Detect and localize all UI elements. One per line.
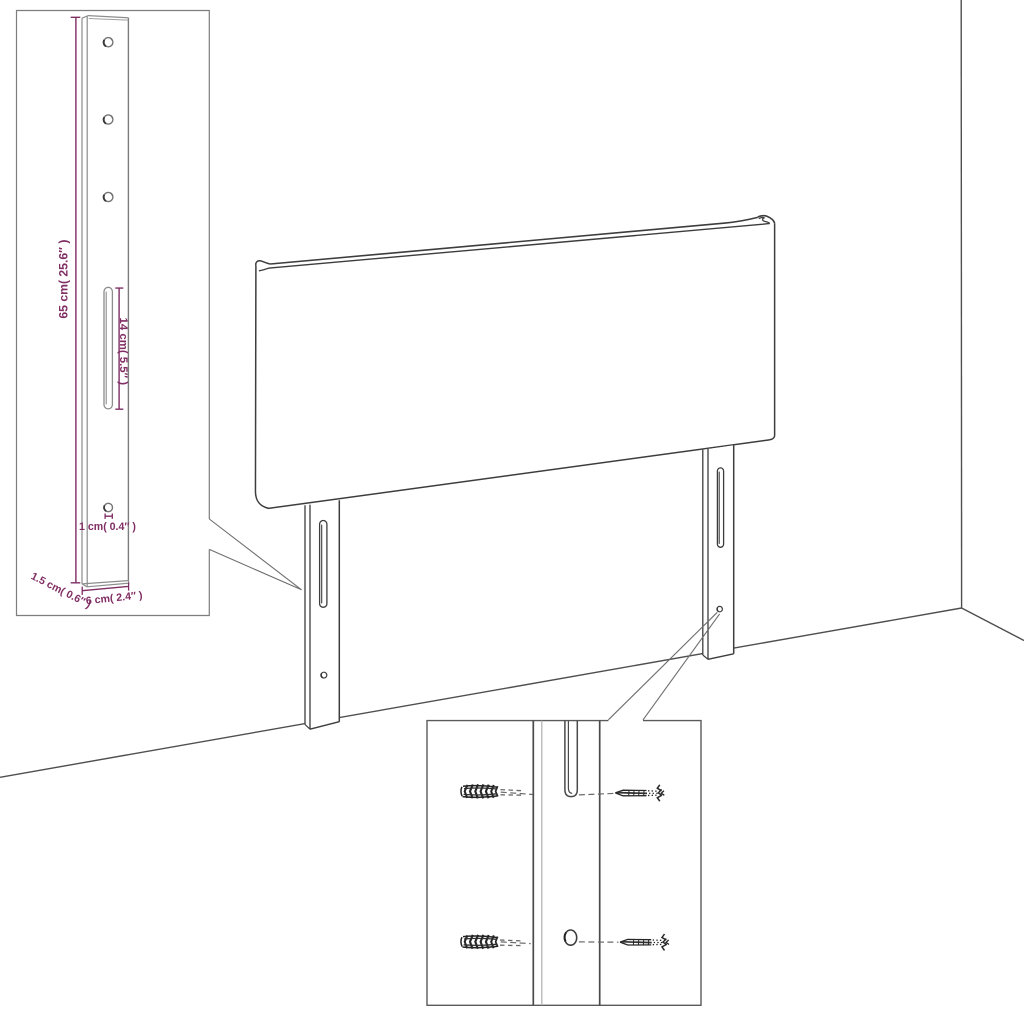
svg-text:65 cm( 25.6″ ): 65 cm( 25.6″ ) (57, 240, 71, 319)
svg-text:14 cm( 5.5″ ): 14 cm( 5.5″ ) (117, 318, 129, 386)
svg-text:6 cm( 2.4″ ): 6 cm( 2.4″ ) (85, 589, 143, 607)
svg-text:1 cm( 0.4″ ): 1 cm( 0.4″ ) (79, 521, 136, 533)
